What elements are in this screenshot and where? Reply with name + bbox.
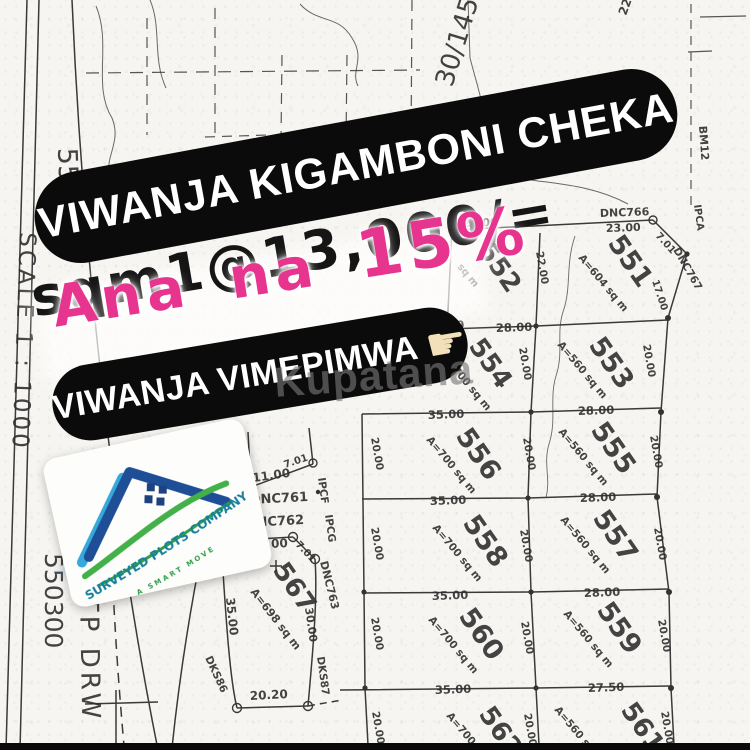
map-label: BM12 xyxy=(696,125,711,160)
map-label: 20.00 xyxy=(516,346,534,381)
map-label: 35.00 xyxy=(432,588,469,603)
map-label: 28.00 xyxy=(580,490,617,505)
map-label: IPCA xyxy=(691,204,706,232)
map-label: 20.00 xyxy=(640,343,658,378)
map-label: 35.00 xyxy=(428,407,465,422)
map-label: 7.01 xyxy=(293,539,318,564)
map-label: IPCF xyxy=(315,477,331,505)
map-label: 20.00 xyxy=(368,616,386,651)
logo-roof-dark-stroke xyxy=(73,453,232,557)
map-label: 20.00 xyxy=(647,434,665,469)
map-label: 17.00 xyxy=(649,279,669,313)
map-label: 30/145 xyxy=(430,0,485,90)
map-label: 7.01 xyxy=(283,453,310,471)
map-label: 20.20 xyxy=(249,687,288,703)
map-label: 20.00 xyxy=(520,436,538,471)
map-label: 28.00 xyxy=(496,320,533,335)
map-label: 35.00 xyxy=(223,597,241,636)
map-label: 20.00 xyxy=(651,526,669,561)
map-label: SCALE 1 : 1000 xyxy=(6,232,40,451)
logo-window-icon xyxy=(144,483,167,506)
map-label: DKS87 xyxy=(314,656,331,696)
map-label: DKS86 xyxy=(202,654,229,694)
map-label: DNC763 xyxy=(317,560,342,611)
map-label: 20.00 xyxy=(517,528,535,563)
map-label: 35.00 xyxy=(435,682,472,697)
map-label: 20.00 xyxy=(368,526,386,561)
map-label: 35.00 xyxy=(430,493,467,508)
map-label: 22.00 xyxy=(533,250,551,285)
map-label: 30.00 xyxy=(302,607,320,644)
map-label: TP DRW xyxy=(73,595,105,723)
map-label: 20.00 xyxy=(368,436,386,471)
map-label: DNC766 xyxy=(600,205,650,220)
listing-ad-image: { "overlay": { "banner1": "VIWANJA KIGAM… xyxy=(0,0,750,750)
map-label: 20.00 xyxy=(369,710,387,745)
map-label: 22 xyxy=(616,0,635,17)
bottom-black-bar xyxy=(0,743,750,750)
map-label: 27.50 xyxy=(588,680,625,695)
map-label: IPCG xyxy=(322,514,338,543)
